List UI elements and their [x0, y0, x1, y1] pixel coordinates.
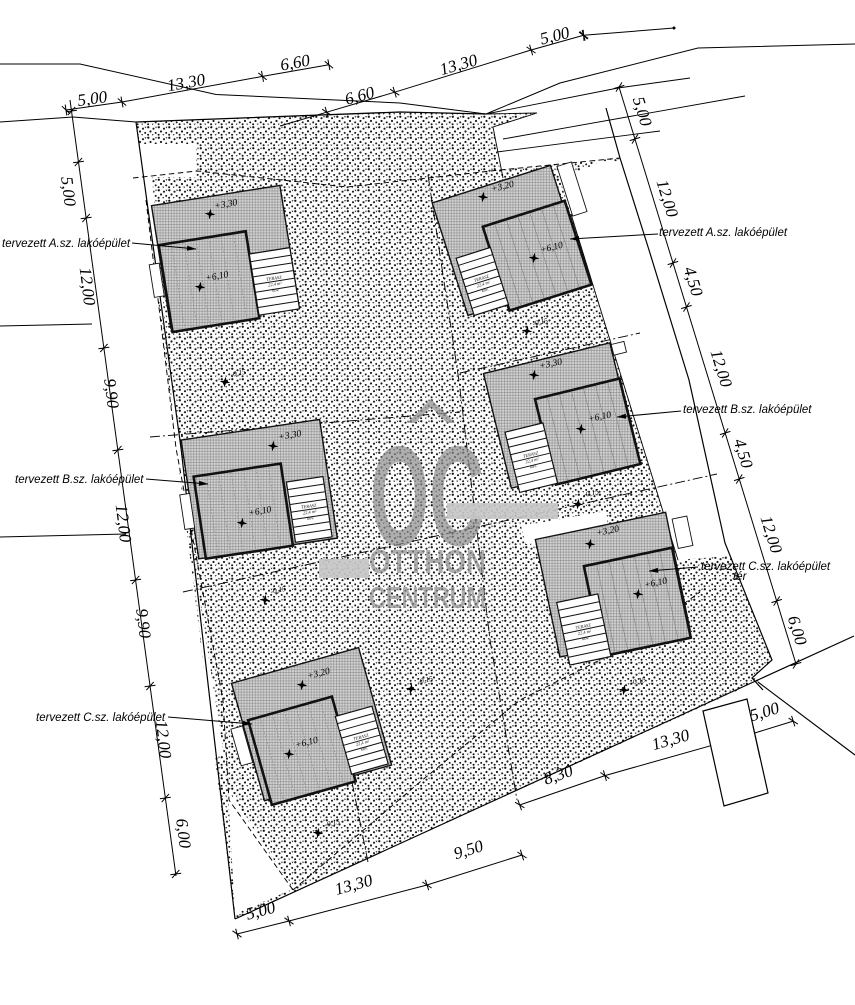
svg-text:tervezett B.sz. lakóépület: tervezett B.sz. lakóépület [683, 404, 812, 416]
svg-text:5,00: 5,00 [57, 175, 80, 207]
svg-text:CENTRUM: CENTRUM [369, 580, 486, 615]
svg-text:tervezett C.sz. lakóépület: tervezett C.sz. lakóépület [36, 712, 166, 724]
svg-text:6,00: 6,00 [172, 817, 195, 849]
svg-text:tervezett A.sz. lakóépület: tervezett A.sz. lakóépület [659, 227, 788, 239]
svg-text:tér: tér [733, 571, 748, 583]
svg-text:9,90: 9,90 [132, 607, 155, 639]
svg-text:9,90: 9,90 [100, 377, 123, 409]
svg-text:tervezett B.sz. lakóépület: tervezett B.sz. lakóépület [15, 474, 144, 486]
svg-text:OTTHON: OTTHON [369, 543, 486, 580]
svg-text:köv.: köv. [307, 515, 315, 521]
svg-text:tervezett C.sz. lakóépület: tervezett C.sz. lakóépület [701, 561, 831, 573]
svg-text:tervezett A.sz. lakóépület: tervezett A.sz. lakóépület [2, 238, 131, 250]
